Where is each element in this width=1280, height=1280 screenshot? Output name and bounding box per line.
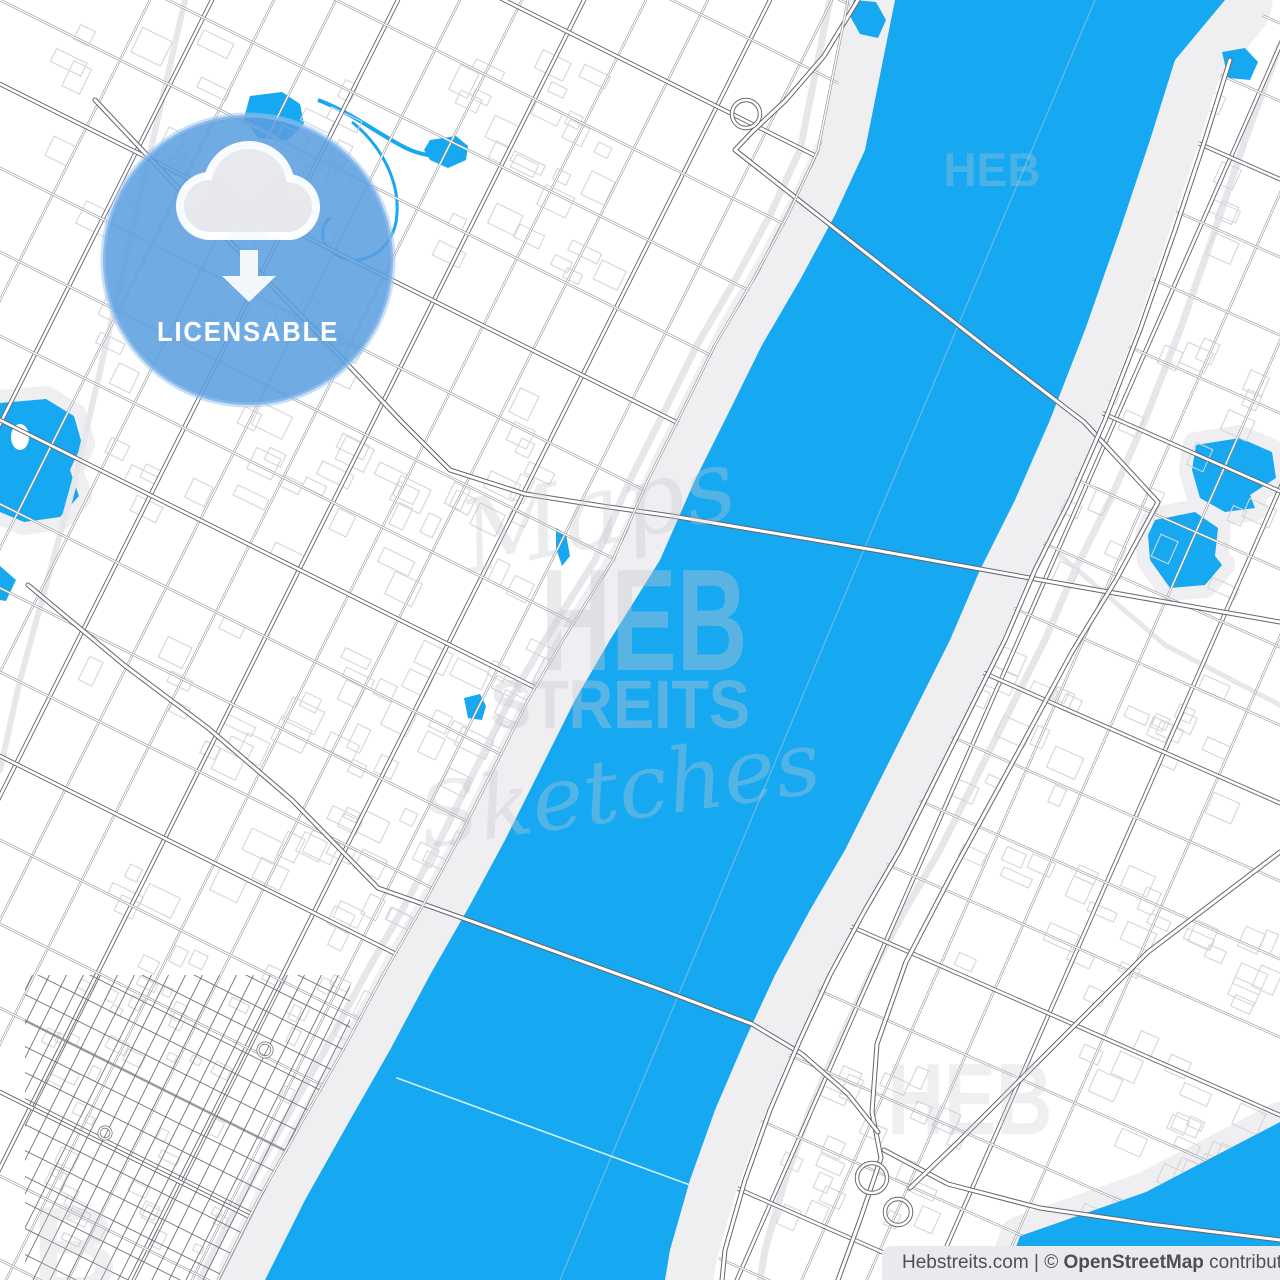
attribution-prefix: Hebstreits.com | © bbox=[902, 1252, 1063, 1274]
licensable-badge: LICENSABLE bbox=[103, 115, 393, 405]
watermark-tile: B bbox=[32, 1182, 119, 1280]
map-poster: Maps HEB STREITS Sketches HEB HEB B bbox=[0, 0, 1280, 1280]
watermark-tile: HEB bbox=[944, 143, 1041, 196]
attribution-bar: Hebstreits.com | © OpenStreetMap contrib… bbox=[882, 1246, 1280, 1280]
map-canvas: Maps HEB STREITS Sketches HEB HEB B bbox=[0, 0, 1280, 1280]
watermark-tile: HEB bbox=[888, 1044, 1053, 1156]
badge-label: LICENSABLE bbox=[157, 316, 339, 347]
attribution-brand: OpenStreetMap bbox=[1063, 1252, 1203, 1274]
attribution-suffix: contributors bbox=[1204, 1252, 1280, 1274]
